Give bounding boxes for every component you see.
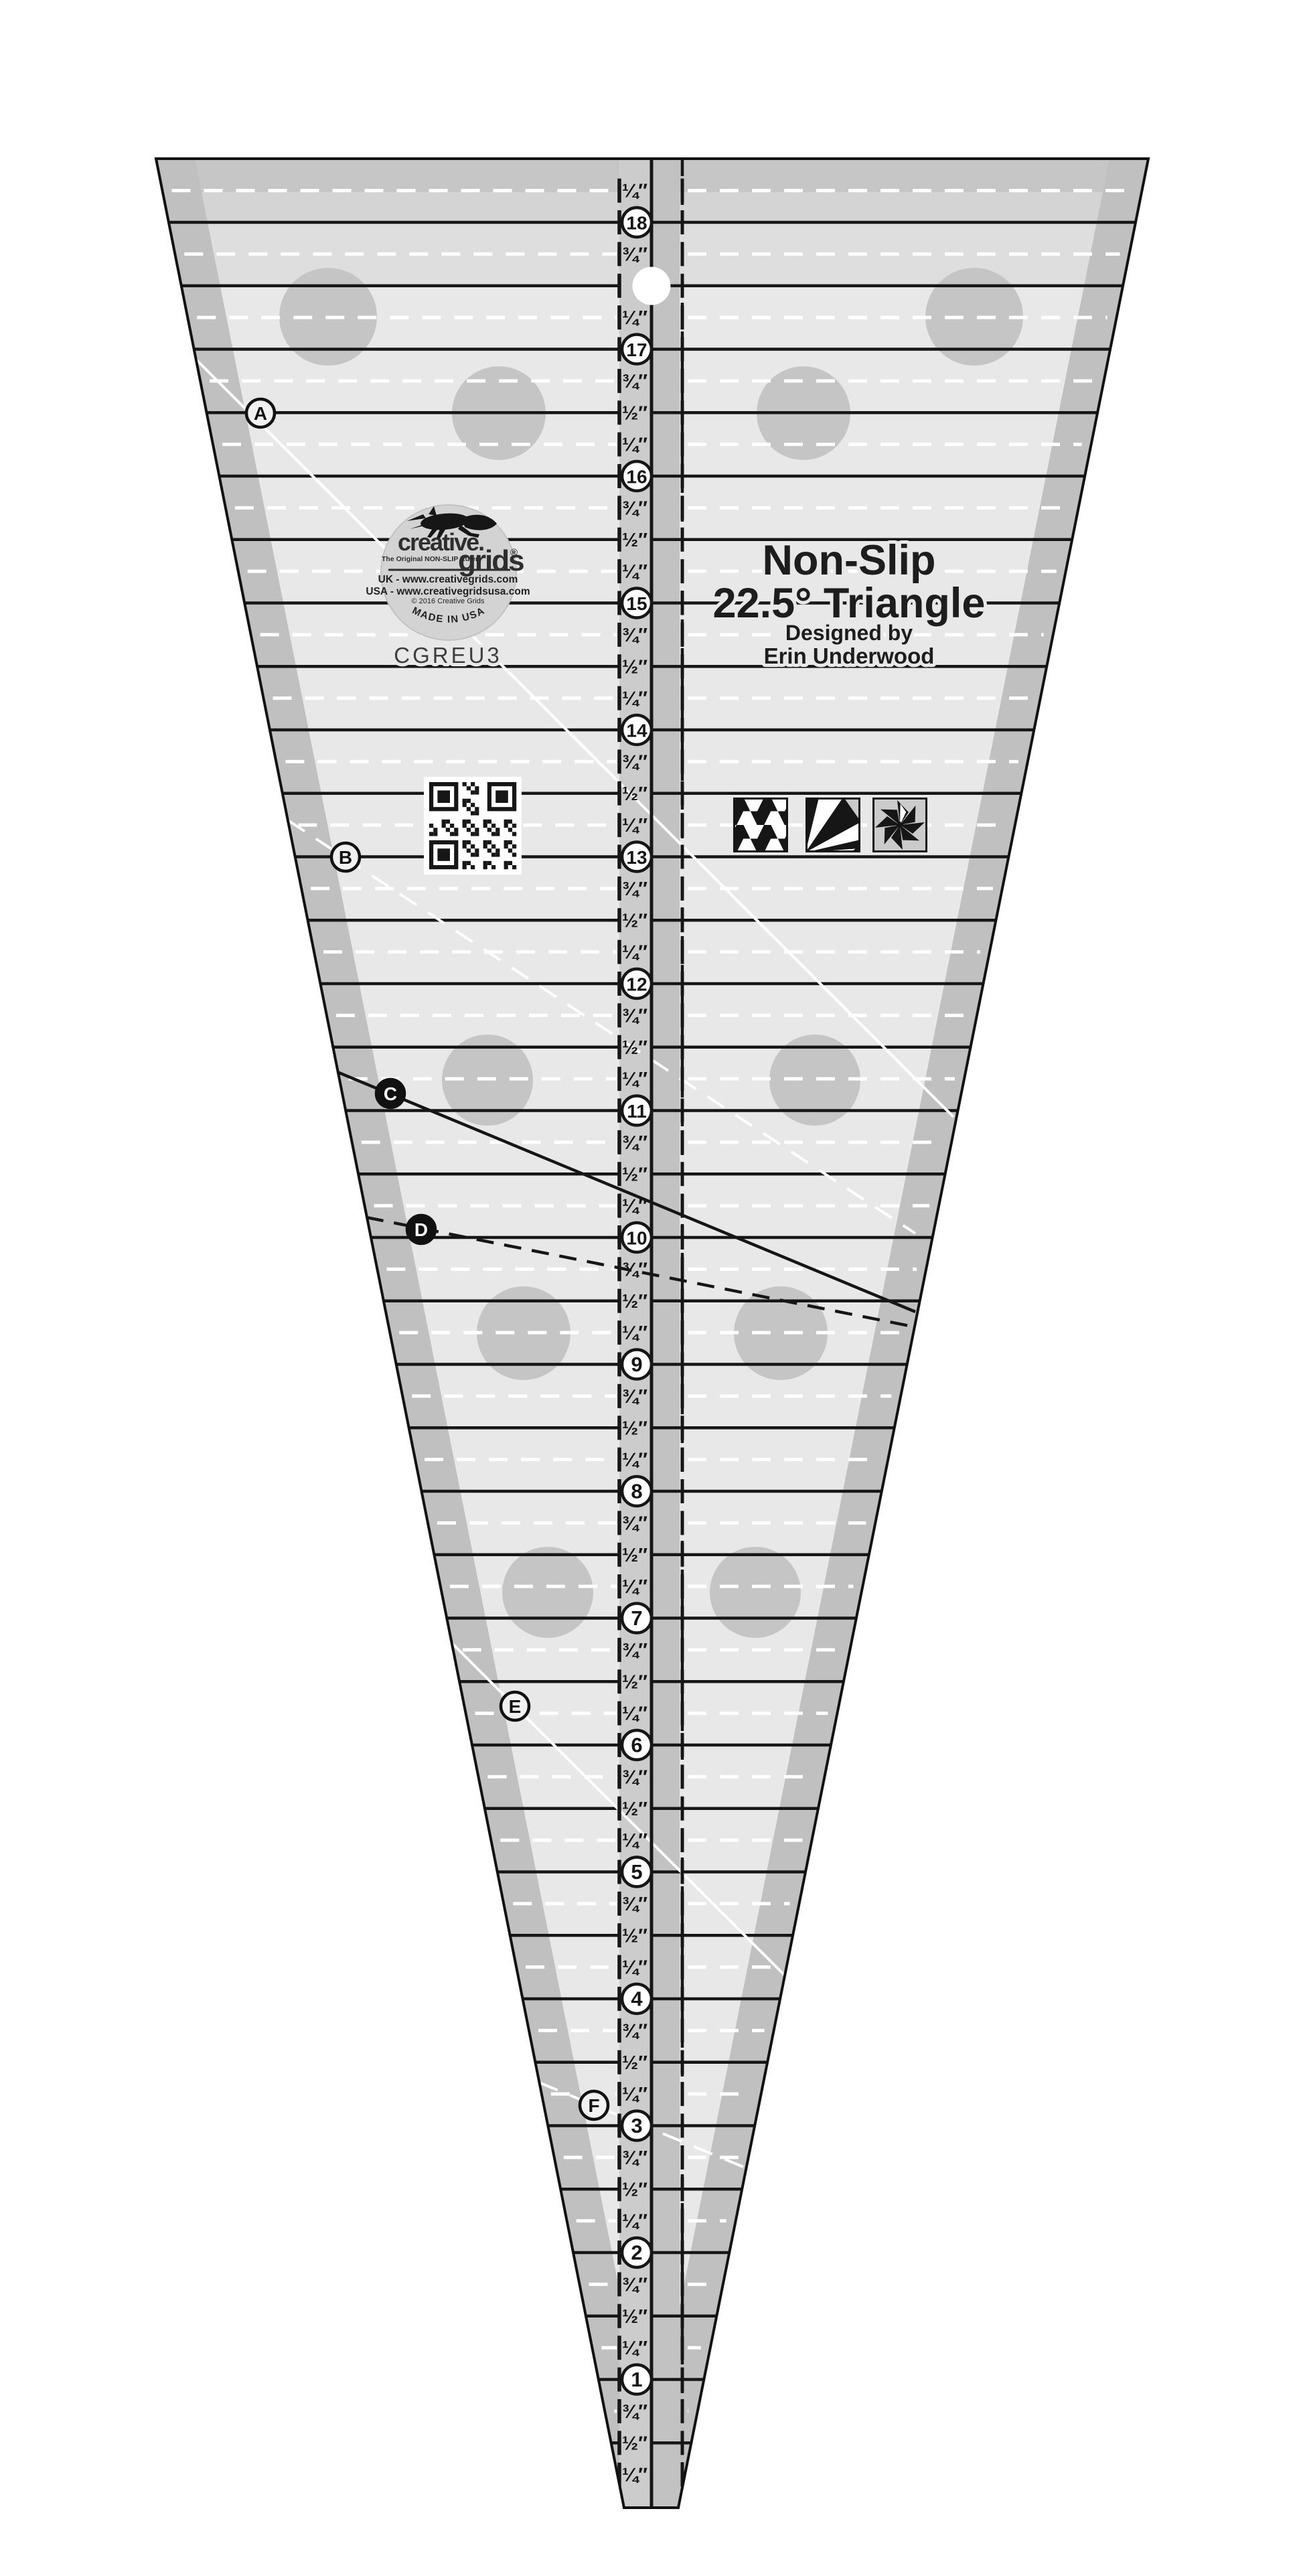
fraction-label: ½″ (622, 1291, 647, 1312)
logo-url-usa: USA - www.creativegridsusa.com (366, 586, 530, 597)
fraction-label: ¼″ (622, 1957, 647, 1979)
fraction-label: ¼″ (622, 2338, 647, 2359)
fraction-label: ¼″ (622, 561, 647, 583)
inch-number: 15 (626, 593, 647, 614)
fraction-label: ¼″ (622, 1450, 647, 1471)
fraction-label: ½″ (622, 2433, 647, 2454)
inch-marker-4: 4 (622, 1984, 651, 2014)
fraction-label: ¼″ (622, 2211, 647, 2232)
fraction-label: ½″ (622, 530, 647, 551)
inch-marker-3: 3 (622, 2111, 651, 2141)
inch-number: 1 (631, 2368, 642, 2391)
grip-dot (925, 268, 1023, 366)
fraction-label: ¾″ (622, 751, 647, 773)
ruler-graphic: ¾″¼″¾″½″¼″¾″½″¼″¾″½″¼″¾″½″¼″¾″½″¼″¾″½″¼″… (0, 0, 1303, 2576)
fraction-label: ¾″ (622, 2274, 647, 2295)
inch-number: 7 (631, 1606, 642, 1630)
inch-number: 10 (626, 1228, 647, 1249)
registered-mark: ® (510, 547, 518, 558)
fraction-label: ¼″ (622, 1196, 647, 1217)
inch-marker-11: 11 (622, 1096, 651, 1126)
hang-hole (633, 267, 671, 305)
fraction-label: ¾″ (622, 1640, 647, 1661)
reference-letter-label: E (509, 1696, 522, 1717)
reference-letter-D: D (407, 1215, 435, 1243)
reference-letter-B: B (331, 843, 360, 871)
inch-number: 11 (627, 1101, 647, 1122)
fraction-label: ½″ (622, 1037, 647, 1059)
inch-number: 14 (626, 721, 647, 741)
grip-dot (502, 1547, 593, 1638)
fraction-label: ¼″ (622, 1830, 647, 1851)
fraction-label: ¾″ (622, 625, 647, 646)
title-line-2: 22.5° Triangle (713, 580, 986, 627)
inch-marker-18: 18 (622, 208, 651, 237)
fraction-label: ¼″ (622, 815, 647, 836)
qr-code (424, 777, 522, 875)
inch-marker-6: 6 (622, 1730, 651, 1760)
fraction-label: ½″ (622, 2306, 647, 2328)
inch-marker-8: 8 (622, 1476, 651, 1506)
pinwheel-star-block (872, 798, 927, 852)
fraction-label: ½″ (622, 2179, 647, 2200)
inch-number: 8 (631, 1480, 642, 1503)
designer-name: Erin Underwood (764, 643, 935, 668)
fraction-label: ¾″ (622, 371, 647, 392)
fraction-label: ¾″ (622, 1766, 647, 1788)
inch-number: 16 (626, 467, 647, 487)
fraction-label: ¾″ (622, 2020, 647, 2042)
inch-marker-2: 2 (622, 2238, 651, 2267)
reference-letter-C: C (376, 1079, 404, 1108)
title-line-1: Non-Slip (763, 537, 936, 584)
inch-marker-13: 13 (622, 842, 651, 872)
inch-marker-1: 1 (622, 2365, 651, 2395)
reference-letter-label: D (414, 1219, 428, 1240)
fraction-label: ¼″ (622, 181, 647, 202)
reference-letter-F: F (580, 2091, 608, 2119)
center-strip-right (651, 159, 680, 2508)
fraction-label: ¼″ (622, 1576, 647, 1598)
inch-number: 18 (626, 213, 647, 234)
product-image-page: ¾″¼″¾″½″¼″¾″½″¼″¾″½″¼″¾″½″¼″¾″½″¼″¾″½″¼″… (0, 0, 1303, 2576)
logo-url-uk: UK - www.creativegrids.com (378, 574, 518, 585)
fraction-label: ¾″ (622, 879, 647, 900)
fraction-label: ¼″ (622, 1703, 647, 1725)
logo-copyright: © 2016 Creative Grids (412, 597, 485, 605)
model-number: CGREU3 (394, 643, 502, 668)
title-byline: Designed by (785, 621, 913, 645)
fraction-label: ½″ (622, 910, 647, 931)
fraction-label: ¼″ (622, 688, 647, 710)
fraction-label: ¾″ (622, 1259, 647, 1280)
inch-marker-14: 14 (622, 715, 651, 745)
fraction-label: ½″ (622, 656, 647, 678)
fraction-label: ¼″ (622, 2465, 647, 2486)
fraction-label: ¼″ (622, 942, 647, 964)
logo-tagline: The Original NON-SLIP Ruler (382, 555, 478, 563)
fraction-label: ¾″ (622, 1894, 647, 1915)
inch-marker-10: 10 (622, 1223, 651, 1252)
fraction-label: ½″ (622, 783, 647, 805)
inch-marker-15: 15 (622, 589, 651, 618)
fraction-label: ¼″ (622, 1322, 647, 1344)
fraction-label: ½″ (622, 1925, 647, 1947)
inch-number: 5 (631, 1860, 642, 1884)
inch-number: 3 (631, 2114, 642, 2137)
fraction-label: ½″ (622, 2052, 647, 2074)
fraction-label: ¾″ (622, 1513, 647, 1534)
fraction-label: ½″ (622, 402, 647, 424)
inch-marker-17: 17 (622, 335, 651, 364)
inch-number: 9 (631, 1353, 642, 1376)
inch-number: 2 (631, 2241, 642, 2265)
inch-marker-16: 16 (622, 461, 651, 491)
grip-dot (710, 1547, 801, 1638)
reference-letter-label: B (339, 847, 352, 868)
inch-number: 17 (626, 339, 647, 360)
fraction-label: ¾″ (622, 2147, 647, 2169)
inch-marker-7: 7 (622, 1604, 651, 1633)
inch-marker-9: 9 (622, 1350, 651, 1379)
inch-number: 4 (631, 1987, 643, 2011)
fraction-label: ¾″ (622, 1005, 647, 1027)
reference-letter-label: F (588, 2095, 599, 2116)
fraction-label: ¼″ (622, 2084, 647, 2105)
fraction-label: ¼″ (622, 307, 647, 329)
fraction-label: ¼″ (622, 1069, 647, 1090)
fraction-label: ¾″ (622, 1132, 647, 1154)
fraction-label: ½″ (622, 1799, 647, 1820)
reference-letter-label: A (254, 403, 267, 424)
inch-number: 13 (626, 847, 647, 868)
fraction-label: ½″ (622, 1671, 647, 1693)
ruler-body: ¾″¼″¾″½″¼″¾″½″¼″¾″½″¼″¾″½″¼″¾″½″¼″¾″½″¼″… (134, 159, 1169, 2508)
inch-marker-5: 5 (622, 1858, 651, 1887)
reference-letter-E: E (501, 1692, 529, 1720)
fraction-label: ¾″ (622, 244, 647, 265)
fraction-label: ¾″ (622, 1386, 647, 1408)
fraction-label: ½″ (622, 1418, 647, 1439)
inch-marker-12: 12 (622, 969, 651, 998)
reference-letter-A: A (246, 399, 275, 427)
fan-rays-block (806, 798, 860, 852)
inch-number: 12 (626, 974, 647, 995)
fraction-label: ¼″ (622, 435, 647, 456)
fraction-label: ½″ (622, 1545, 647, 1566)
reference-letter-label: C (384, 1083, 397, 1104)
fraction-label: ¾″ (622, 498, 647, 519)
fraction-label: ½″ (622, 1164, 647, 1185)
inch-number: 6 (631, 1734, 642, 1757)
fraction-label: ¾″ (622, 2401, 647, 2423)
